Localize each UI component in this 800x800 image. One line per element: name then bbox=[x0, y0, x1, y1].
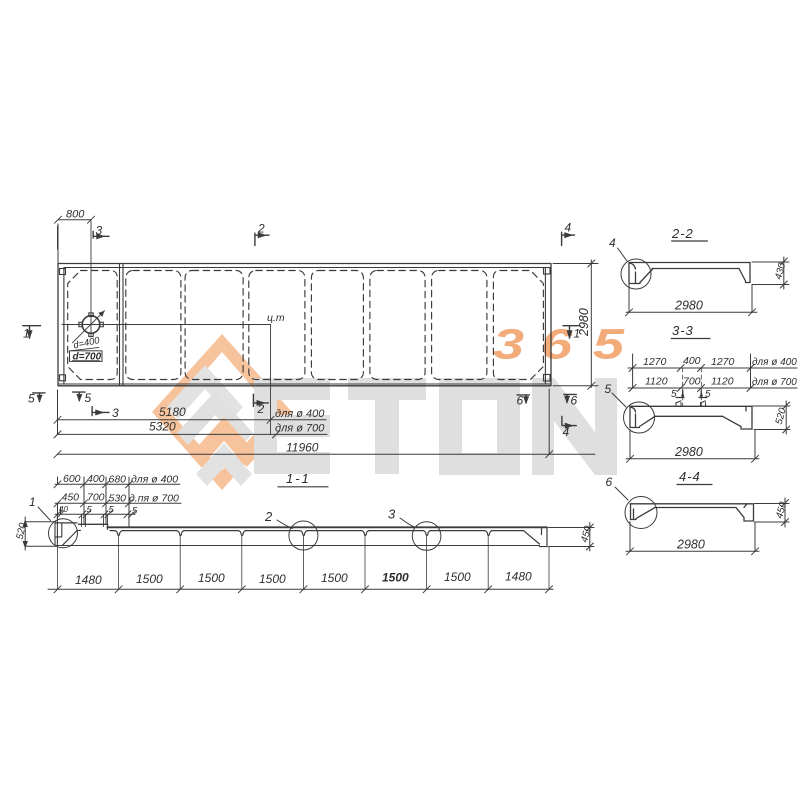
svg-text:450: 450 bbox=[62, 492, 80, 504]
svg-text:680: 680 bbox=[109, 474, 127, 486]
svg-text:1: 1 bbox=[29, 495, 36, 509]
svg-text:для ø 700: для ø 700 bbox=[275, 423, 325, 435]
svg-text:2: 2 bbox=[264, 509, 273, 524]
svg-text:3: 3 bbox=[112, 406, 119, 420]
svg-text:1270: 1270 bbox=[711, 356, 735, 368]
svg-text:1120: 1120 bbox=[645, 376, 668, 388]
svg-text:430: 430 bbox=[773, 261, 788, 280]
svg-text:5: 5 bbox=[87, 505, 93, 516]
svg-text:5: 5 bbox=[671, 389, 677, 400]
svg-text:2-2: 2-2 bbox=[671, 226, 694, 241]
svg-text:5320: 5320 bbox=[149, 420, 176, 434]
svg-text:600: 600 bbox=[63, 473, 81, 485]
svg-text:700: 700 bbox=[87, 492, 105, 504]
svg-text:365: 365 bbox=[493, 320, 641, 368]
svg-text:4: 4 bbox=[609, 236, 616, 250]
svg-text:1480: 1480 bbox=[505, 570, 532, 584]
svg-text:2980: 2980 bbox=[674, 299, 703, 313]
svg-text:700: 700 bbox=[683, 376, 701, 388]
svg-text:2980: 2980 bbox=[676, 538, 705, 552]
svg-text:1500: 1500 bbox=[444, 570, 471, 584]
svg-text:1: 1 bbox=[23, 327, 30, 341]
svg-text:3: 3 bbox=[96, 224, 103, 238]
svg-text:1500: 1500 bbox=[136, 572, 163, 586]
svg-text:3: 3 bbox=[388, 507, 396, 522]
svg-text:4-4: 4-4 bbox=[679, 469, 701, 484]
svg-text:1480: 1480 bbox=[75, 573, 102, 587]
svg-text:6: 6 bbox=[606, 475, 613, 489]
svg-text:1500: 1500 bbox=[382, 571, 409, 585]
svg-text:530: 530 bbox=[109, 493, 127, 505]
svg-text:для ø 400: для ø 400 bbox=[131, 474, 178, 486]
svg-text:4: 4 bbox=[565, 221, 572, 235]
svg-text:1120: 1120 bbox=[711, 376, 734, 388]
svg-text:1500: 1500 bbox=[259, 572, 286, 586]
svg-text:1500: 1500 bbox=[198, 571, 225, 585]
svg-text:400: 400 bbox=[87, 473, 105, 485]
svg-text:для ø 700: для ø 700 bbox=[752, 377, 797, 388]
svg-text:5: 5 bbox=[109, 505, 115, 516]
svg-text:5: 5 bbox=[605, 382, 612, 396]
svg-text:д.пя ø 700: д.пя ø 700 bbox=[129, 493, 179, 505]
svg-text:11960: 11960 bbox=[286, 441, 319, 455]
svg-text:5: 5 bbox=[85, 391, 92, 405]
svg-text:1: 1 bbox=[574, 327, 581, 341]
svg-text:для ø 400: для ø 400 bbox=[275, 408, 325, 420]
svg-text:ц.т: ц.т bbox=[267, 312, 285, 324]
svg-text:для ø 400: для ø 400 bbox=[752, 357, 797, 368]
svg-text:5: 5 bbox=[28, 392, 35, 406]
svg-text:5: 5 bbox=[132, 506, 138, 517]
svg-text:6: 6 bbox=[571, 394, 578, 408]
svg-text:1-1: 1-1 bbox=[286, 471, 311, 486]
svg-text:6: 6 bbox=[517, 394, 524, 408]
svg-text:3-3: 3-3 bbox=[672, 323, 694, 338]
svg-text:1270: 1270 bbox=[643, 356, 667, 368]
svg-text:2980: 2980 bbox=[674, 445, 703, 459]
svg-text:520: 520 bbox=[15, 522, 29, 541]
svg-text:2: 2 bbox=[257, 222, 265, 236]
svg-text:800: 800 bbox=[66, 209, 85, 221]
svg-text:5180: 5180 bbox=[159, 405, 186, 419]
svg-text:2: 2 bbox=[257, 402, 265, 416]
svg-text:5: 5 bbox=[705, 389, 711, 400]
svg-text:1500: 1500 bbox=[321, 571, 348, 585]
svg-text:4: 4 bbox=[563, 425, 570, 439]
svg-text:40: 40 bbox=[59, 505, 68, 514]
svg-text:400: 400 bbox=[683, 355, 701, 367]
